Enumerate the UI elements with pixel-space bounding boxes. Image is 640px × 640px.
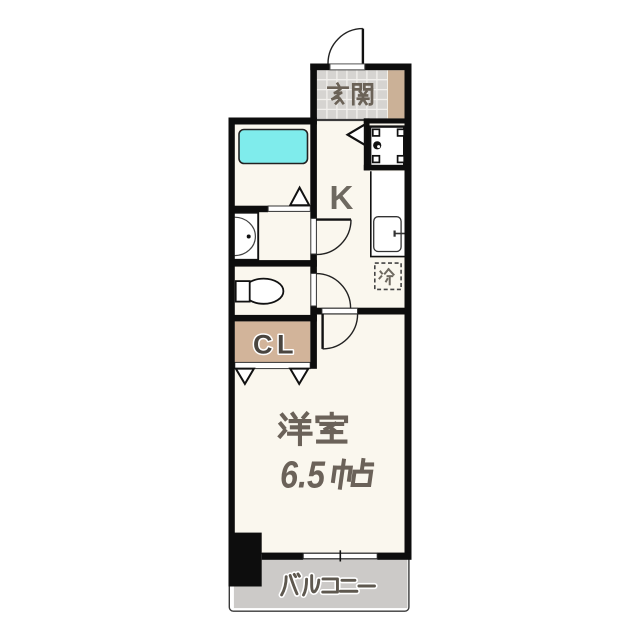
svg-text:6.5: 6.5	[280, 455, 326, 497]
svg-text:CL: CL	[253, 330, 298, 360]
svg-text:K: K	[330, 179, 354, 216]
